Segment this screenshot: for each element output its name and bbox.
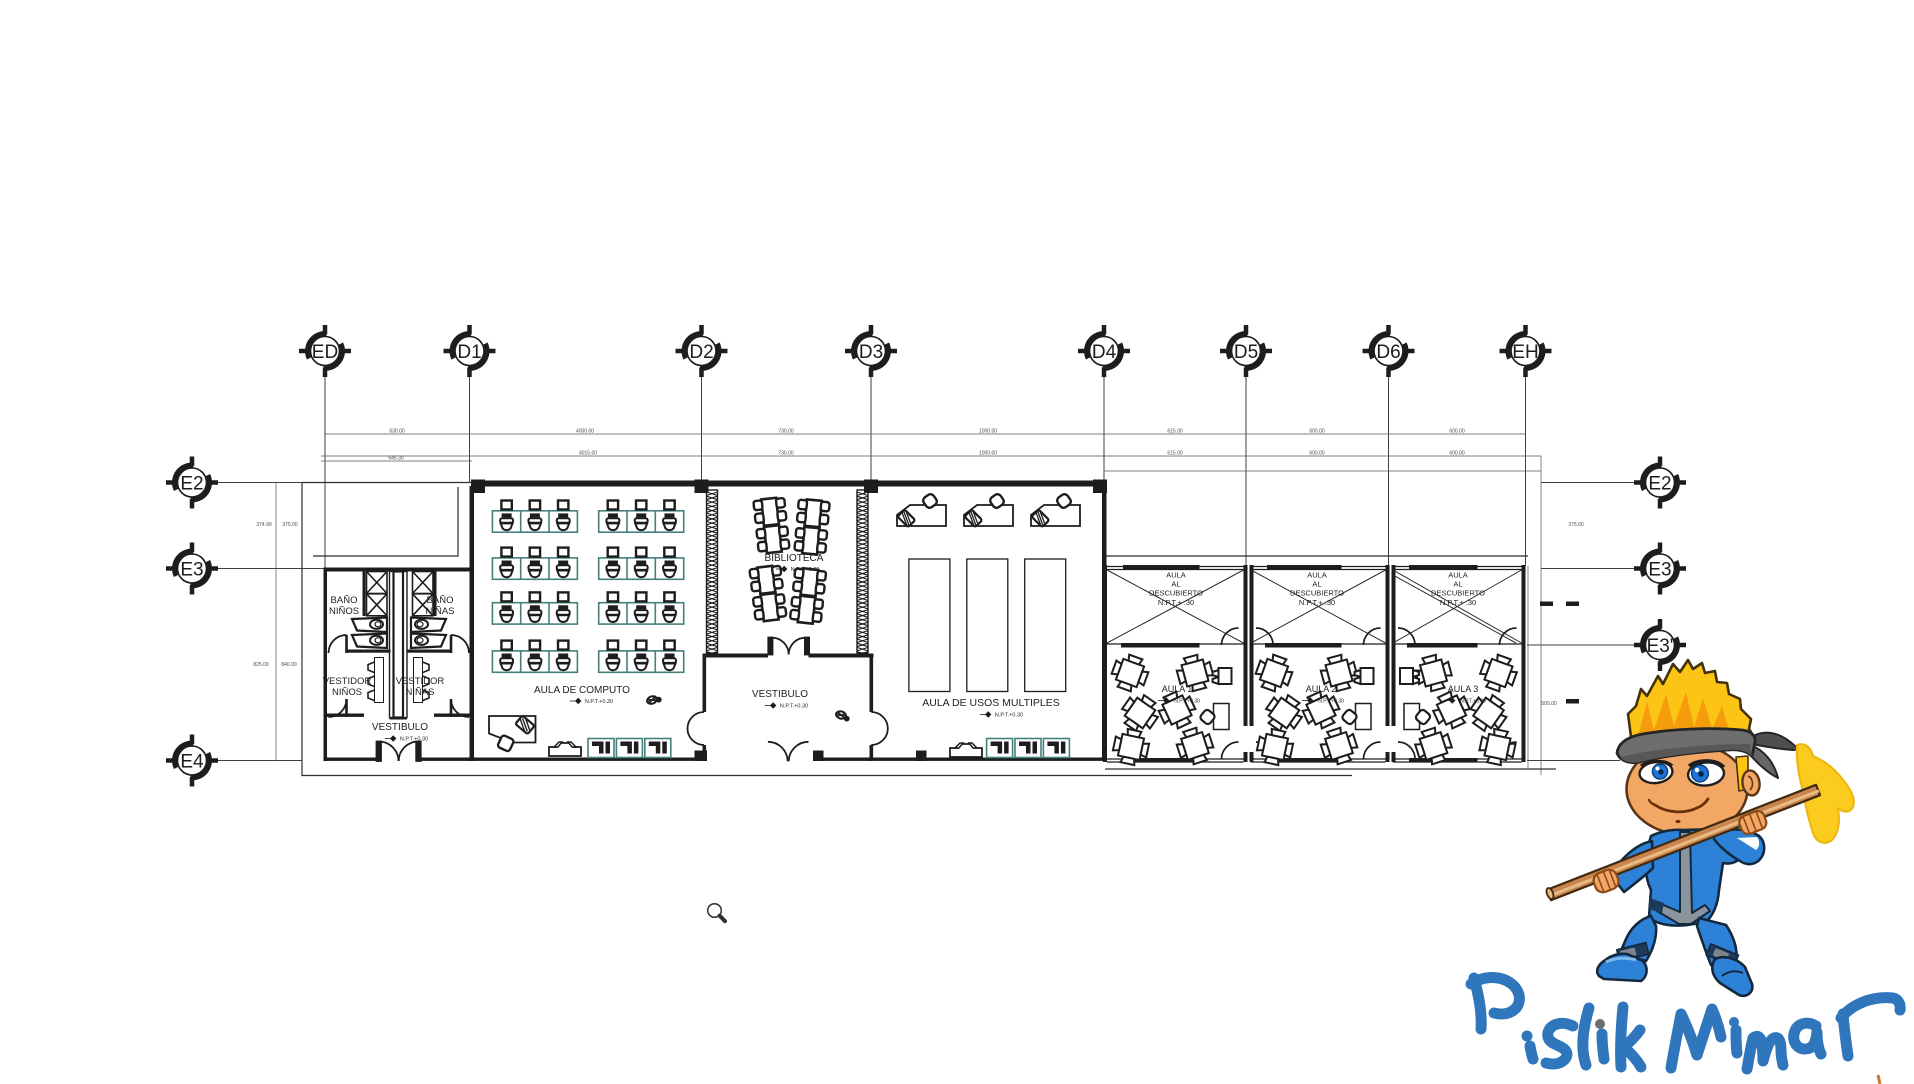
svg-text:NIÑOS: NIÑOS [332, 687, 362, 698]
svg-text:AULA 1: AULA 1 [1162, 684, 1193, 694]
svg-text:E3: E3 [1648, 559, 1671, 580]
svg-text:VESTIDOR: VESTIDOR [323, 676, 372, 687]
svg-text:AULA: AULA [1307, 571, 1327, 580]
svg-text:N.P.T.+ .30: N.P.T.+ .30 [1299, 598, 1335, 607]
svg-text:N.P.T.+0.30: N.P.T.+0.30 [1460, 699, 1486, 705]
svg-text:825.00: 825.00 [253, 662, 269, 668]
svg-text:DESCUBIERTO: DESCUBIERTO [1149, 589, 1203, 598]
svg-text:N.P.T.+0.30: N.P.T.+0.30 [1318, 699, 1344, 705]
svg-text:DESCUBIERTO: DESCUBIERTO [1290, 589, 1344, 598]
svg-text:N.P.T.+0.30: N.P.T.+0.30 [585, 699, 613, 705]
svg-text:500.00: 500.00 [1541, 701, 1557, 707]
svg-text:N.P.T.+0.30: N.P.T.+0.30 [780, 704, 808, 710]
svg-text:600.00: 600.00 [1309, 429, 1325, 435]
svg-text:AULA: AULA [1448, 571, 1468, 580]
svg-text:730.00: 730.00 [778, 451, 794, 457]
svg-text:BAÑO: BAÑO [427, 595, 454, 606]
svg-text:840.00: 840.00 [281, 662, 297, 668]
svg-text:4000.00: 4000.00 [576, 429, 594, 435]
svg-text:AULA DE COMPUTO: AULA DE COMPUTO [534, 685, 630, 696]
svg-text:NIÑOS: NIÑOS [329, 606, 359, 617]
svg-text:AULA 2: AULA 2 [1306, 684, 1337, 694]
svg-text:AULA: AULA [1166, 571, 1186, 580]
svg-text:N.P.T +0.30: N.P.T +0.30 [791, 567, 820, 573]
svg-text:VESTIDOR: VESTIDOR [396, 676, 445, 687]
svg-text:AULA DE USOS MULTIPLES: AULA DE USOS MULTIPLES [922, 697, 1060, 709]
svg-text:375.00: 375.00 [1568, 522, 1584, 528]
svg-text:N.P.T.+ .30: N.P.T.+ .30 [1158, 598, 1194, 607]
svg-text:D4: D4 [1092, 342, 1117, 363]
svg-text:D6: D6 [1376, 342, 1400, 363]
svg-text:730.00: 730.00 [778, 429, 794, 435]
svg-text:E2: E2 [1648, 473, 1671, 494]
svg-text:NIÑAS: NIÑAS [405, 687, 434, 698]
svg-text:D3: D3 [859, 342, 883, 363]
svg-text:ED: ED [312, 342, 338, 363]
svg-text:NIÑAS: NIÑAS [425, 606, 454, 617]
svg-text:BAÑO: BAÑO [331, 595, 358, 606]
svg-text:AULA 3: AULA 3 [1448, 684, 1479, 694]
svg-text:D5: D5 [1234, 342, 1258, 363]
svg-text:E3': E3' [1647, 636, 1674, 657]
svg-text:615.00: 615.00 [1167, 451, 1183, 457]
svg-text:E2: E2 [180, 473, 203, 494]
svg-text:615.00: 615.00 [1167, 429, 1183, 435]
svg-text:600.00: 600.00 [1309, 451, 1325, 457]
svg-text:D2: D2 [689, 342, 713, 363]
svg-text:VESTIBULO: VESTIBULO [372, 722, 428, 733]
svg-text:VESTIBULO: VESTIBULO [752, 689, 808, 700]
svg-text:375.00: 375.00 [282, 522, 298, 528]
svg-text:645.30: 645.30 [388, 456, 404, 462]
svg-text:D1: D1 [457, 342, 481, 363]
svg-text:N.P.T.+0.30: N.P.T.+0.30 [995, 713, 1023, 719]
svg-text:1000.00: 1000.00 [979, 451, 997, 457]
svg-text:AL: AL [1312, 580, 1321, 589]
svg-text:600.00: 600.00 [1449, 451, 1465, 457]
svg-text:E4: E4 [180, 751, 204, 772]
svg-text:4015.00: 4015.00 [579, 451, 597, 457]
svg-text:600.00: 600.00 [1449, 429, 1465, 435]
svg-text:AL: AL [1171, 580, 1180, 589]
svg-text:AL: AL [1453, 580, 1462, 589]
svg-text:N.P.T.+ .30: N.P.T.+ .30 [1440, 598, 1476, 607]
svg-text:374.99: 374.99 [256, 522, 272, 528]
svg-text:1000.00: 1000.00 [979, 429, 997, 435]
svg-text:EH: EH [1512, 342, 1538, 363]
svg-text:DESCUBIERTO: DESCUBIERTO [1431, 589, 1485, 598]
svg-text:N.P.T.+0.30: N.P.T.+0.30 [1174, 699, 1200, 705]
svg-text:630.00: 630.00 [389, 429, 405, 435]
svg-text:E3: E3 [180, 559, 203, 580]
svg-text:BIBLIOTECA: BIBLIOTECA [765, 553, 824, 564]
